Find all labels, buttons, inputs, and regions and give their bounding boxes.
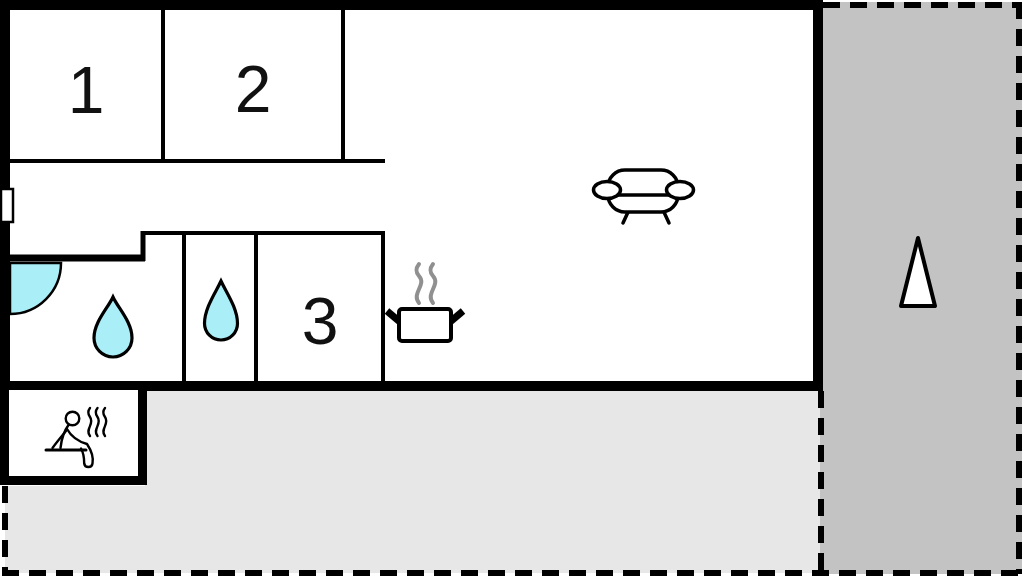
window-marker — [1, 189, 13, 222]
sauna-room — [5, 386, 143, 481]
floor-plan-drawing — [0, 0, 1024, 579]
sofa-armrest-right — [667, 182, 694, 199]
sofa-armrest-left — [594, 182, 621, 199]
room-label-2: 2 — [235, 56, 272, 122]
pot-body — [399, 309, 451, 341]
floor-plan: 1 2 3 — [0, 0, 1024, 579]
room-label-1: 1 — [68, 57, 105, 123]
room-label-3: 3 — [302, 288, 339, 354]
